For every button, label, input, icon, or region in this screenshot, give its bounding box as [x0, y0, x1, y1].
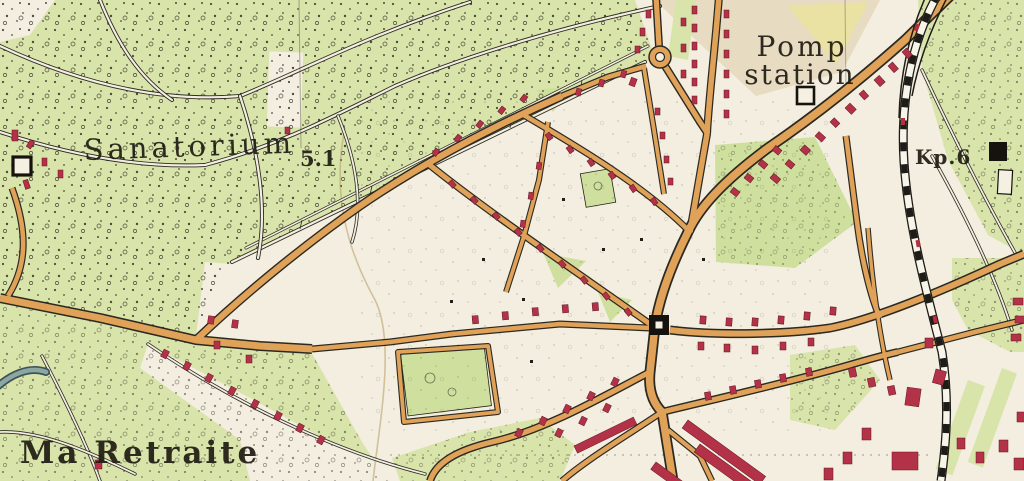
label-pomp-station-line2: station: [744, 58, 855, 91]
label-ma-retraite: Ma Retraite: [20, 435, 260, 471]
label-kp6: Kp.6: [915, 145, 971, 169]
historical-map: Sanatorium Pomp station Ma Retraite 5.1 …: [0, 0, 1024, 481]
junction-square-marker: [649, 315, 669, 335]
label-spot-height: 5.1: [300, 146, 337, 171]
kp-square-marker: [989, 142, 1007, 161]
sanatorium-square-marker: [13, 157, 31, 175]
kp-building-outline: [997, 170, 1012, 195]
map-canvas: Sanatorium Pomp station Ma Retraite 5.1 …: [0, 0, 1024, 481]
